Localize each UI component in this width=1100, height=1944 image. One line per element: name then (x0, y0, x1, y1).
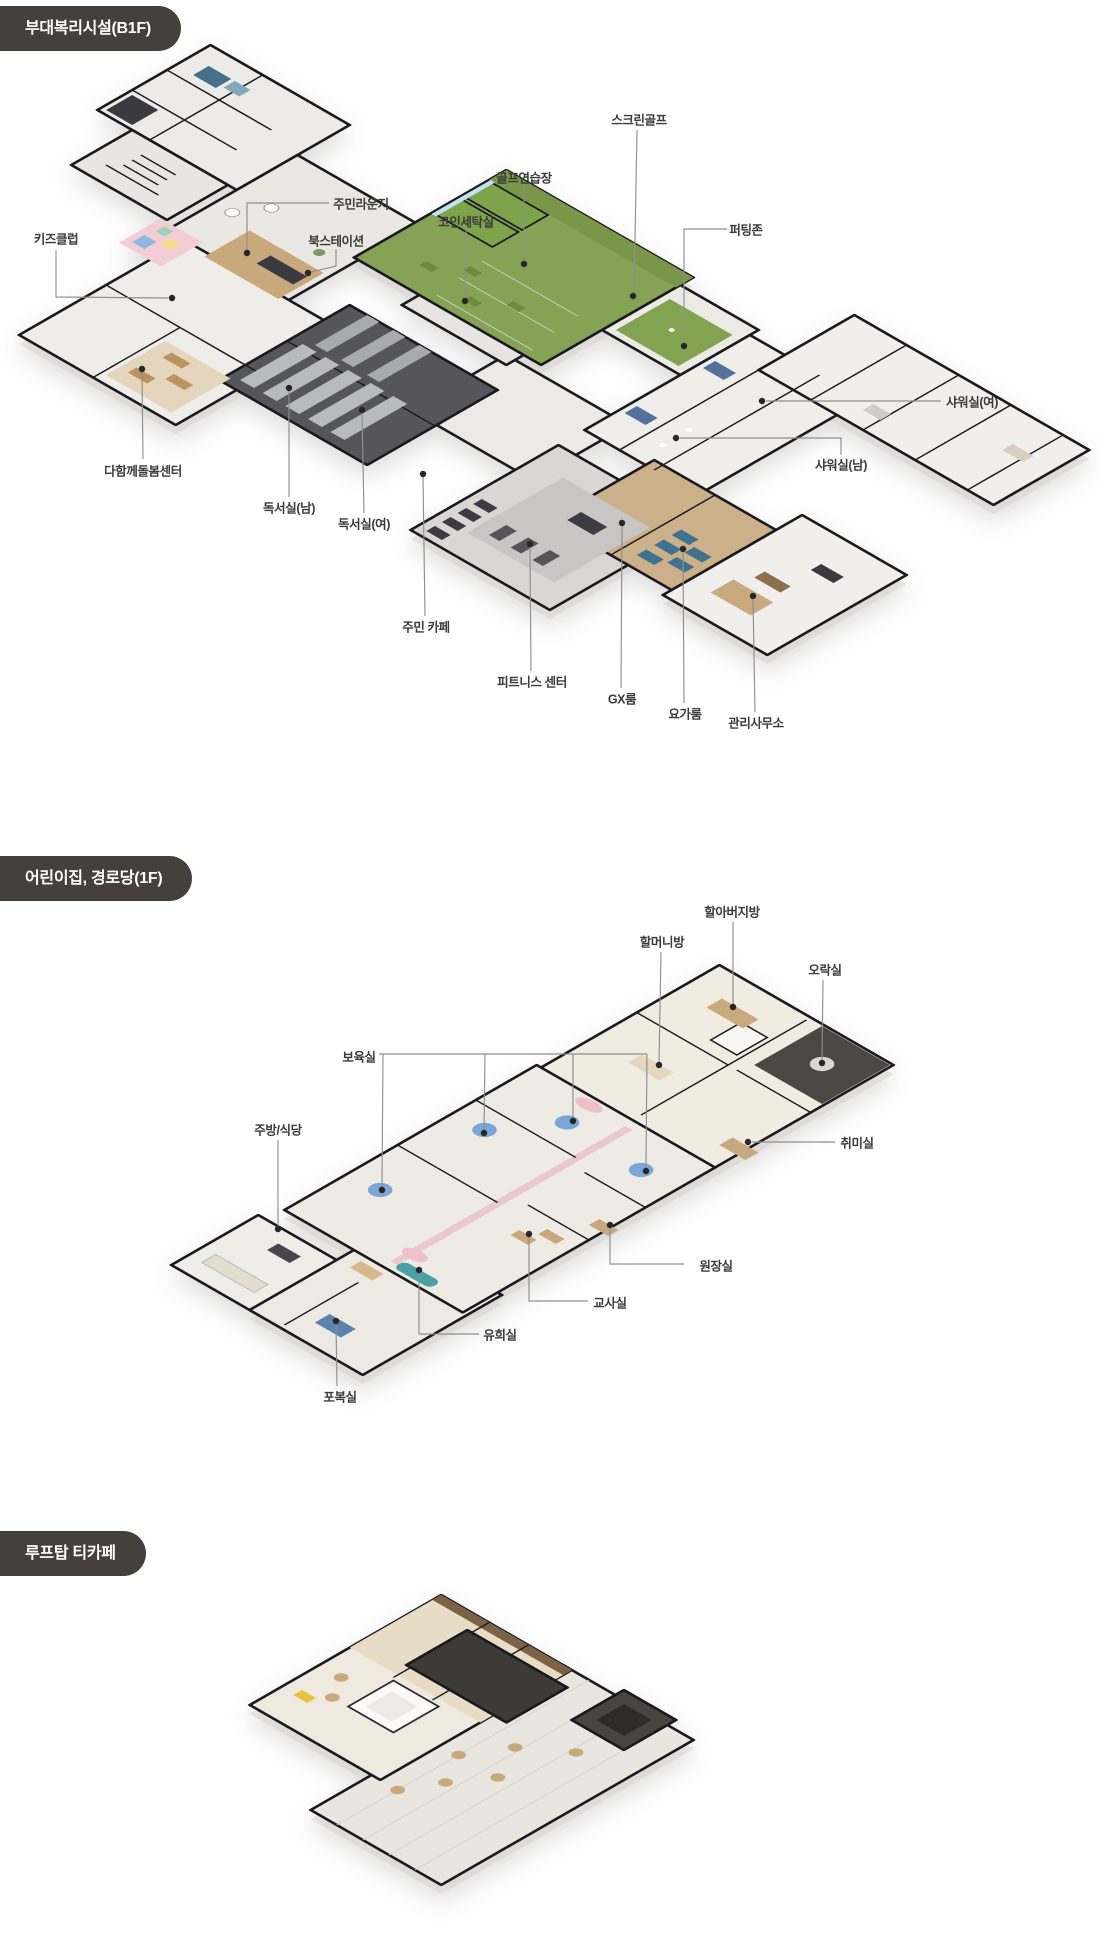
section-header-1f: 어린이집, 경로당(1F) (0, 856, 192, 901)
label-management-office: 관리사무소 (728, 713, 784, 732)
label-kids-club: 키즈클럽 (34, 229, 78, 248)
label-golf-practice-range: 골프연습장 (496, 168, 552, 187)
label-grandfathers-room: 할아버지방 (704, 902, 760, 921)
label-playroom: 유희실 (483, 1325, 516, 1344)
rooftop-floor-plan-illustration (189, 1590, 702, 1894)
label-nursery-room: 보육실 (342, 1047, 375, 1066)
label-shower-room-men: 샤워실(남) (815, 455, 867, 474)
label-reading-room-men: 독서실(남) (263, 498, 315, 517)
label-crawling-room: 포복실 (323, 1387, 356, 1406)
b1f-floor-plan-illustration (0, 0, 1100, 719)
section-header-b1f: 부대복리시설(B1F) (0, 6, 181, 51)
label-directors-office: 원장실 (699, 1256, 732, 1275)
label-book-station: 북스테이션 (308, 231, 364, 250)
f1-floor-plan-illustration (171, 958, 902, 1385)
label-hobby-room: 취미실 (840, 1133, 873, 1152)
page: 부대복리시설(B1F) 어린이집, 경로당(1F) 루프탑 티카페 키즈클럽 주… (0, 0, 1100, 1944)
label-recreation-room: 오락실 (808, 960, 841, 979)
section-header-rooftop: 루프탑 티카페 (0, 1531, 146, 1576)
label-community-care-center: 다함께돌봄센터 (104, 461, 182, 480)
label-reading-room-women: 독서실(여) (338, 514, 390, 533)
label-gx-room: GX룸 (608, 689, 636, 708)
label-putting-zone: 퍼팅존 (729, 220, 762, 239)
label-kitchen-dining: 주방/식당 (254, 1120, 301, 1139)
label-coin-laundry: 코인세탁실 (438, 212, 494, 231)
label-teachers-room: 교사실 (593, 1293, 626, 1312)
label-residents-cafe: 주민 카페 (402, 617, 449, 636)
label-grandmothers-room: 할머니방 (640, 932, 684, 951)
label-shower-room-women: 샤워실(여) (946, 392, 998, 411)
label-yoga-room: 요가룸 (668, 704, 701, 723)
label-residents-lounge: 주민라운지 (333, 194, 389, 213)
floor-plan-artwork (0, 0, 1100, 1944)
label-screen-golf: 스크린골프 (611, 110, 667, 129)
label-fitness-center: 피트니스 센터 (497, 672, 567, 691)
